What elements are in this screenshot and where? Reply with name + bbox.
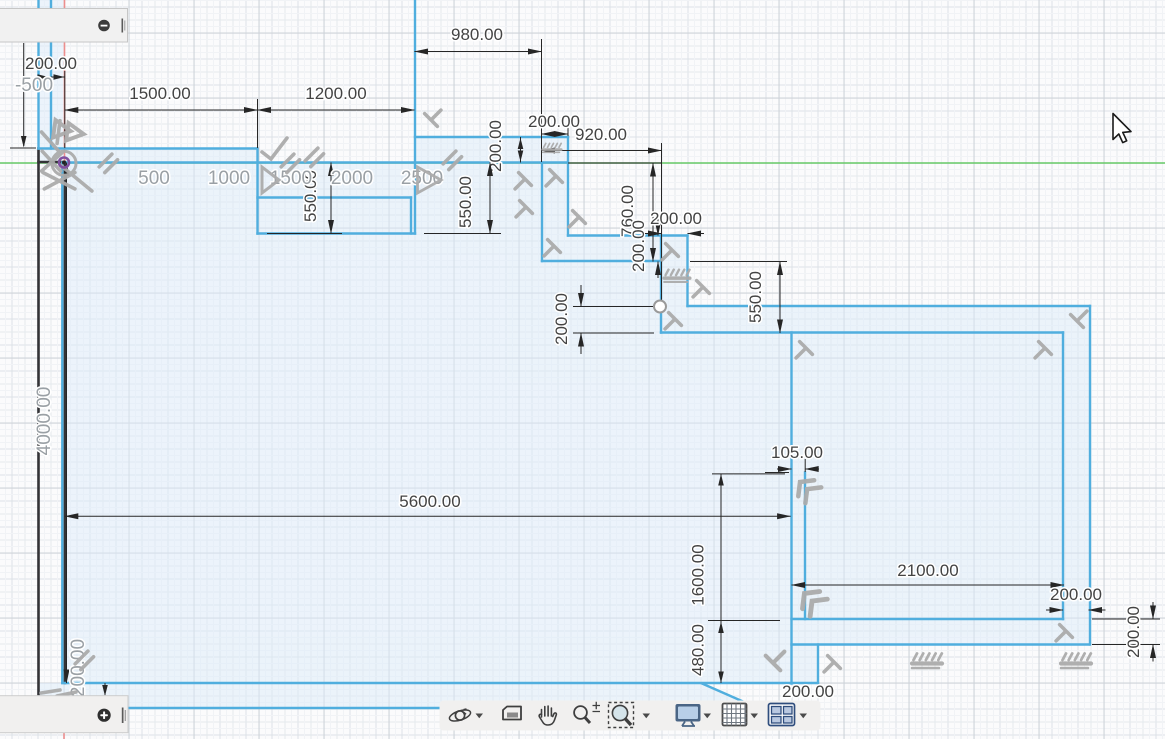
svg-text:200.00: 200.00 xyxy=(68,639,89,697)
svg-text:550.00: 550.00 xyxy=(456,176,475,228)
svg-text:200.00: 200.00 xyxy=(782,682,834,701)
svg-text:2000: 2000 xyxy=(331,168,373,189)
svg-text:105.00: 105.00 xyxy=(771,443,823,462)
svg-text:1200.00: 1200.00 xyxy=(305,84,366,103)
svg-text:200.00: 200.00 xyxy=(528,112,580,131)
svg-text:2100.00: 2100.00 xyxy=(897,561,958,580)
svg-text:200.00: 200.00 xyxy=(486,120,505,172)
svg-text:200.00: 200.00 xyxy=(1050,585,1102,604)
svg-text:5600.00: 5600.00 xyxy=(399,492,460,511)
svg-text:1600.00: 1600.00 xyxy=(689,544,708,605)
svg-text:500: 500 xyxy=(138,168,170,189)
svg-text:-500: -500 xyxy=(15,75,53,96)
svg-text:200.00: 200.00 xyxy=(650,209,702,228)
svg-text:920.00: 920.00 xyxy=(575,125,627,144)
svg-text:200.00: 200.00 xyxy=(629,220,648,272)
svg-text:1000: 1000 xyxy=(208,168,250,189)
svg-text:200.00: 200.00 xyxy=(552,293,571,345)
svg-text:980.00: 980.00 xyxy=(451,25,503,44)
svg-text:1500.00: 1500.00 xyxy=(129,84,190,103)
svg-text:200.00: 200.00 xyxy=(25,54,77,73)
svg-text:200.00: 200.00 xyxy=(1124,606,1143,658)
svg-text:4000.00: 4000.00 xyxy=(34,387,55,456)
svg-text:480.00: 480.00 xyxy=(689,624,708,676)
svg-text:550.00: 550.00 xyxy=(746,271,765,323)
